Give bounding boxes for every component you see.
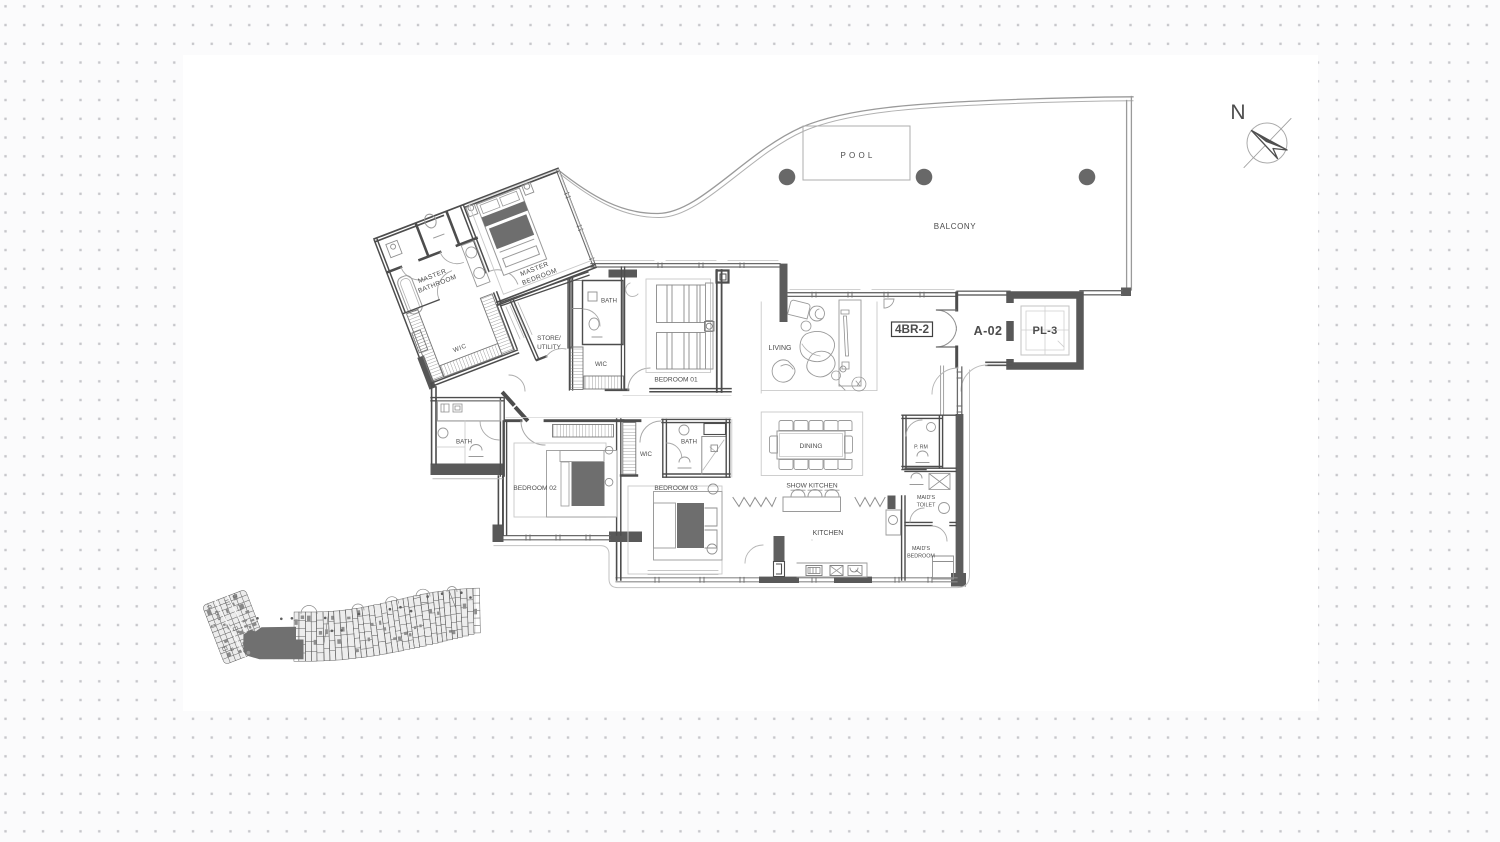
svg-text:P. RM: P. RM xyxy=(914,445,928,451)
svg-text:A-02: A-02 xyxy=(974,324,1003,338)
svg-text:MAID'S: MAID'S xyxy=(917,495,936,501)
svg-text:STORE/: STORE/ xyxy=(537,335,561,342)
svg-text:BATH: BATH xyxy=(601,298,617,305)
svg-text:UTILITY: UTILITY xyxy=(537,344,562,351)
svg-text:DINING: DINING xyxy=(799,443,822,450)
svg-text:N: N xyxy=(1230,101,1245,124)
svg-text:4BR-2: 4BR-2 xyxy=(895,322,930,336)
svg-text:WIC: WIC xyxy=(595,361,608,368)
svg-text:BATH: BATH xyxy=(681,439,697,446)
svg-text:BALCONY: BALCONY xyxy=(934,222,976,231)
svg-text:TOILET: TOILET xyxy=(917,503,936,509)
svg-text:BEDROOM 02: BEDROOM 02 xyxy=(513,485,557,492)
svg-text:PL-3: PL-3 xyxy=(1032,325,1057,337)
svg-text:BEDROOM 01: BEDROOM 01 xyxy=(654,377,698,384)
svg-text:BATH: BATH xyxy=(456,439,472,446)
svg-text:KITCHEN: KITCHEN xyxy=(813,530,844,537)
svg-text:MAID'S: MAID'S xyxy=(912,546,931,552)
svg-text:WIC: WIC xyxy=(640,451,653,458)
svg-text:BEDROOM 03: BEDROOM 03 xyxy=(654,485,698,492)
svg-text:BEDROOM: BEDROOM xyxy=(907,554,935,560)
svg-text:SHOW KITCHEN: SHOW KITCHEN xyxy=(786,483,838,490)
svg-text:LIVING: LIVING xyxy=(769,345,792,352)
svg-text:POOL: POOL xyxy=(840,151,875,160)
